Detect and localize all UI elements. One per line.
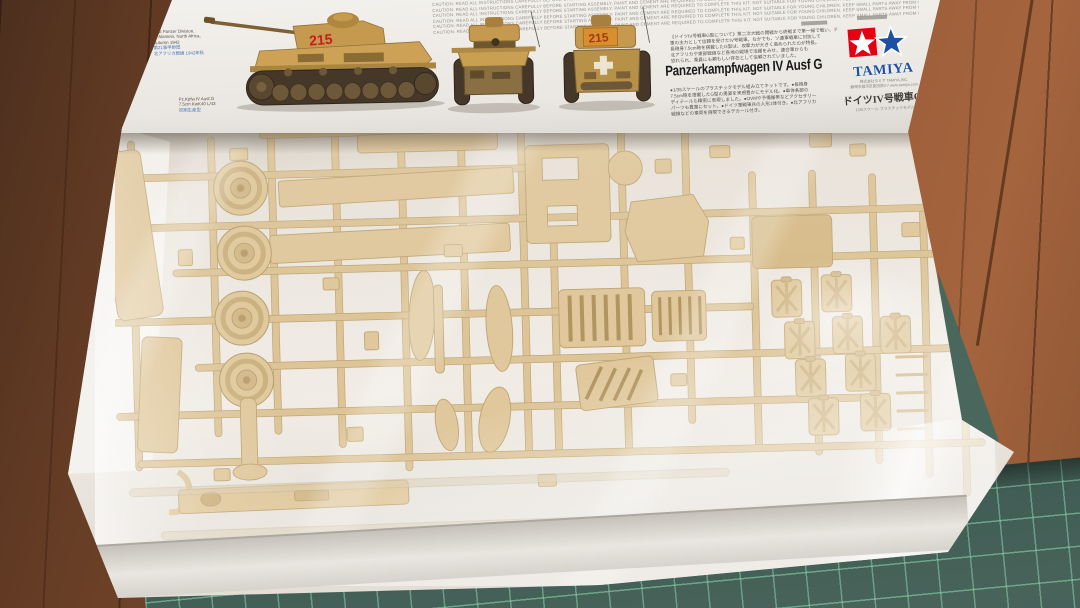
barcode-mark [801, 20, 827, 25]
caption-line: 北アフリカ戦線 1942年秋 [154, 50, 205, 56]
art-caption-marking: 21st Panzer Division, El Alamein, North … [153, 28, 204, 56]
grille-part-2 [575, 355, 659, 411]
tank-illustrations: 215 [147, 0, 662, 137]
tank-rear-illustration: 215 [557, 7, 655, 112]
tank-front-illustration [446, 11, 541, 114]
tamiya-star-logo [839, 22, 925, 62]
engine-grille-part [558, 288, 645, 348]
item-number-mark [857, 15, 887, 20]
box-art-panel: 215 [147, 0, 662, 137]
tank-side-illustration: 215 [204, 10, 445, 114]
features-paragraph-jp: ●1/35スケールのプラスチックモデル組み立てキットです。●長砲身 7.5cm砲… [670, 80, 839, 118]
photo-model-kit-box-scene: CAUTION: READ ALL INSTRUCTIONS CAREFULLY… [0, 0, 1080, 608]
caption-line: 初期生産型 [179, 107, 216, 113]
jerry-can-parts [771, 270, 913, 437]
tamiya-logo-block: TAMIYA 株式会社タミヤ TAMIYA,INC. 静岡市駿河区恩田原3-7 … [839, 22, 927, 114]
grille-part-3 [651, 290, 706, 341]
turret-number-side: 215 [308, 31, 333, 49]
logo-blue-star [876, 26, 907, 56]
box-brand-panel: 《ドイツIV号戦車G型について》第二次大戦の開戦から終戦まで第一線で戦い、ドイツ… [660, 0, 928, 133]
art-caption-spec: Pz.Kpfw.IV Ausf.G 7.5cm KwK40 L/43 初期生産型 [179, 96, 216, 113]
turret-number-rear: 215 [588, 30, 609, 45]
